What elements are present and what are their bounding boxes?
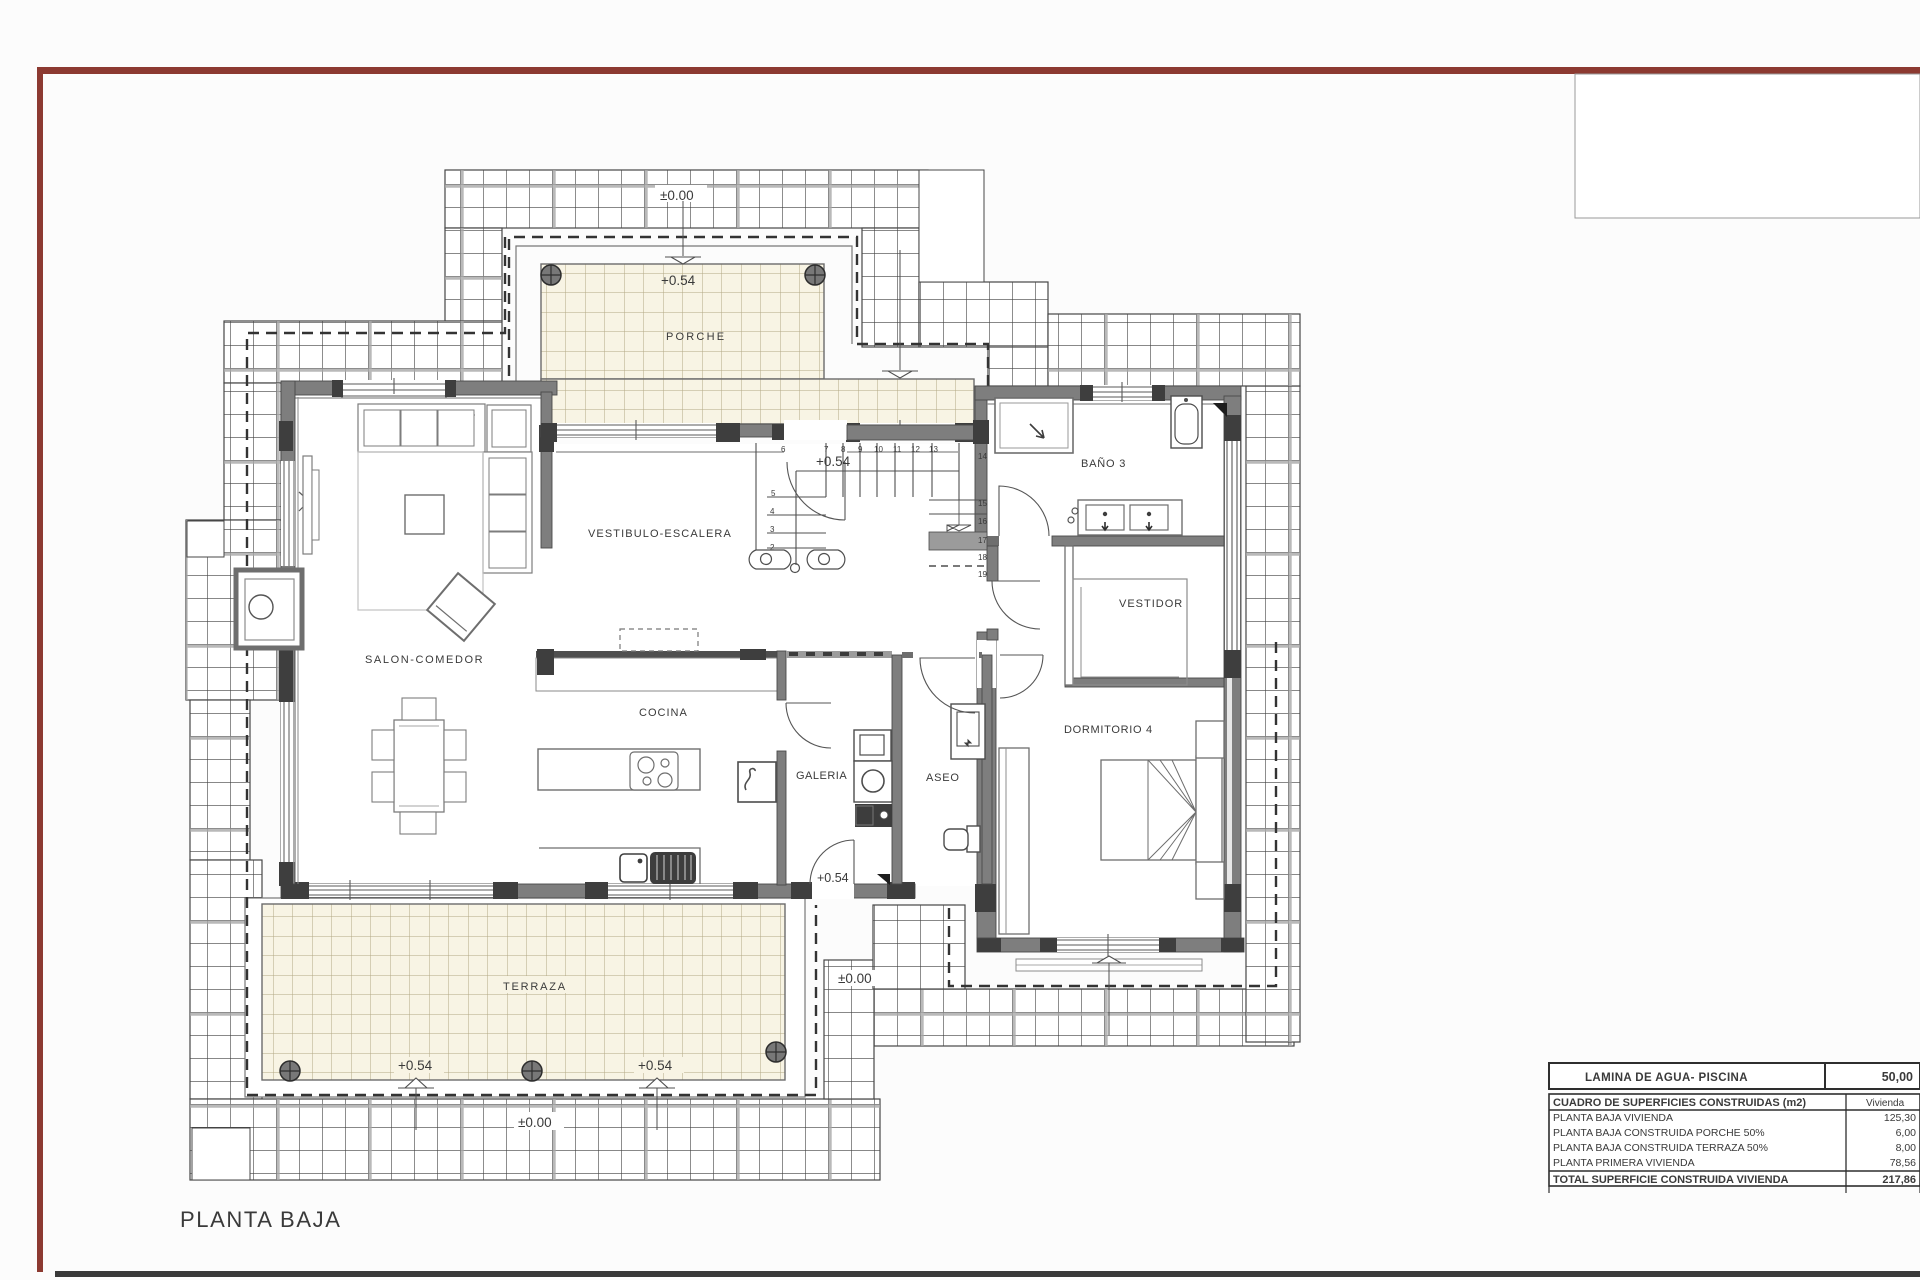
svg-text:LAMINA DE AGUA- PISCINA: LAMINA DE AGUA- PISCINA — [1585, 1072, 1748, 1084]
svg-text:8,00: 8,00 — [1896, 1142, 1917, 1154]
svg-text:PLANTA BAJA CONSTRUIDA PORCHE: PLANTA BAJA CONSTRUIDA PORCHE 50% — [1553, 1127, 1765, 1139]
svg-text:TERRAZA: TERRAZA — [503, 981, 567, 993]
svg-text:VESTIBULO-ESCALERA: VESTIBULO-ESCALERA — [588, 528, 732, 540]
svg-text:14: 14 — [978, 452, 987, 461]
svg-text:±0.00: ±0.00 — [838, 971, 872, 986]
svg-text:50,00: 50,00 — [1882, 1070, 1913, 1084]
svg-text:±0.00: ±0.00 — [518, 1115, 552, 1130]
svg-text:ASEO: ASEO — [926, 772, 960, 784]
svg-text:9: 9 — [858, 445, 863, 454]
svg-text:19: 19 — [978, 570, 987, 579]
svg-text:6: 6 — [781, 445, 786, 454]
svg-text:COCINA: COCINA — [639, 707, 688, 719]
svg-text:Vivienda: Vivienda — [1866, 1098, 1905, 1109]
svg-text:+0.54: +0.54 — [817, 871, 849, 885]
svg-text:PORCHE: PORCHE — [666, 331, 726, 343]
svg-text:CUADRO DE SUPERFICIES CONSTRUI: CUADRO DE SUPERFICIES CONSTRUIDAS (m2) — [1553, 1097, 1806, 1109]
svg-text:PLANTA BAJA VIVIENDA: PLANTA BAJA VIVIENDA — [1553, 1112, 1673, 1124]
svg-text:GALERIA: GALERIA — [796, 770, 847, 782]
svg-text:DORMITORIO 4: DORMITORIO 4 — [1064, 724, 1153, 736]
svg-text:10: 10 — [874, 445, 883, 454]
svg-text:+0.54: +0.54 — [816, 454, 851, 469]
svg-text:125,30: 125,30 — [1884, 1112, 1916, 1124]
svg-text:217,86: 217,86 — [1882, 1174, 1916, 1186]
svg-text:TOTAL SUPERFICIE CONSTRUIDA VI: TOTAL SUPERFICIE CONSTRUIDA VIVIENDA — [1553, 1174, 1789, 1186]
svg-text:PLANTA BAJA: PLANTA BAJA — [180, 1207, 341, 1232]
svg-text:16: 16 — [978, 517, 987, 526]
svg-text:PLANTA PRIMERA VIVIENDA: PLANTA PRIMERA VIVIENDA — [1553, 1157, 1695, 1169]
svg-text:PLANTA BAJA CONSTRUIDA TERRAZA: PLANTA BAJA CONSTRUIDA TERRAZA 50% — [1553, 1142, 1768, 1154]
svg-text:12: 12 — [911, 445, 920, 454]
svg-text:+0.54: +0.54 — [638, 1058, 673, 1073]
svg-text:+0.54: +0.54 — [398, 1058, 433, 1073]
svg-text:78,56: 78,56 — [1890, 1157, 1916, 1169]
svg-text:6,00: 6,00 — [1896, 1127, 1917, 1139]
svg-text:8: 8 — [841, 445, 846, 454]
svg-text:7: 7 — [824, 445, 829, 454]
svg-text:13: 13 — [929, 445, 938, 454]
svg-text:SALON-COMEDOR: SALON-COMEDOR — [365, 654, 484, 666]
svg-text:3: 3 — [770, 525, 775, 534]
svg-text:VESTIDOR: VESTIDOR — [1119, 598, 1183, 610]
svg-text:15: 15 — [978, 499, 987, 508]
svg-text:+0.54: +0.54 — [661, 273, 696, 288]
svg-text:BAÑO 3: BAÑO 3 — [1081, 457, 1126, 470]
svg-text:±0.00: ±0.00 — [660, 188, 694, 203]
svg-text:11: 11 — [893, 445, 902, 454]
svg-text:4: 4 — [770, 507, 775, 516]
svg-text:17: 17 — [978, 536, 987, 545]
svg-text:18: 18 — [978, 553, 987, 562]
svg-text:5: 5 — [771, 489, 776, 498]
